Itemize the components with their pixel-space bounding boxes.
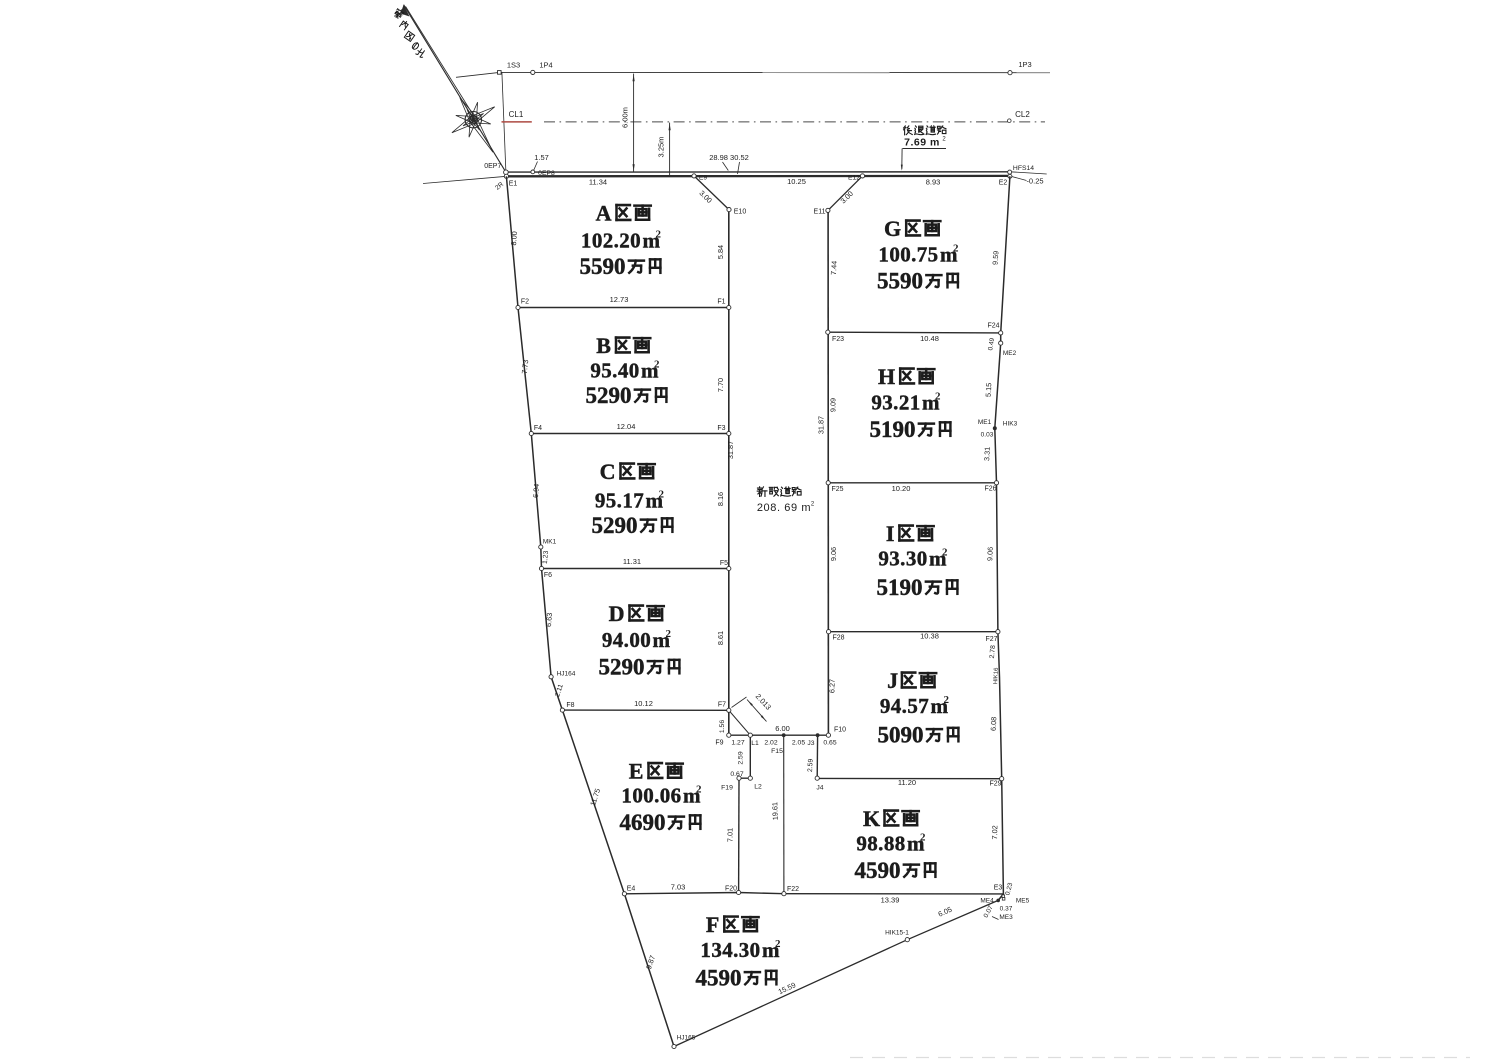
svg-text:2: 2 [665,628,671,640]
svg-text:11.20: 11.20 [898,778,916,787]
svg-text:ME1: ME1 [978,419,992,426]
svg-text:A: A [596,201,612,226]
svg-text:F9: F9 [715,739,723,746]
svg-text:2: 2 [654,359,660,371]
svg-text:1.23: 1.23 [542,550,550,564]
svg-text:11.31: 11.31 [623,557,641,566]
svg-text:2.59: 2.59 [737,751,744,764]
svg-text:95.17: 95.17 [595,488,644,512]
svg-text:C: C [600,459,616,484]
svg-text:94.00: 94.00 [602,628,651,652]
svg-text:2.02: 2.02 [764,740,777,747]
svg-text:E2: E2 [999,179,1008,186]
svg-text:11.34: 11.34 [589,178,607,187]
svg-text:3.31: 3.31 [982,447,992,462]
svg-text:-0.25: -0.25 [1026,176,1043,185]
svg-text:208. 69 m: 208. 69 m [757,502,811,514]
svg-text:9.06: 9.06 [829,547,838,561]
svg-text:12.73: 12.73 [610,295,629,304]
svg-text:F8: F8 [566,702,574,709]
svg-text:5.84: 5.84 [716,245,725,259]
svg-text:0.67: 0.67 [730,771,743,778]
svg-text:F25: F25 [831,486,843,493]
svg-text:10.20: 10.20 [892,484,911,493]
svg-text:8.16: 8.16 [716,492,725,506]
svg-text:ME2: ME2 [1003,350,1017,357]
svg-text:1S3: 1S3 [507,61,520,70]
svg-text:5190: 5190 [877,575,923,600]
svg-text:E1: E1 [509,181,518,188]
svg-text:6.00: 6.00 [775,724,790,733]
svg-text:HJ165: HJ165 [677,1035,696,1042]
svg-text:6.27: 6.27 [827,679,836,693]
svg-text:4690: 4690 [620,810,666,835]
svg-text:1.56: 1.56 [719,720,726,733]
svg-text:2: 2 [943,694,949,706]
svg-text:19.61: 19.61 [770,802,780,821]
svg-text:4590: 4590 [696,966,742,991]
svg-text:100.75: 100.75 [878,242,938,266]
svg-text:10.25: 10.25 [787,177,806,186]
svg-text:12.04: 12.04 [617,422,636,431]
svg-text:7.03: 7.03 [671,883,686,892]
svg-text:102.20: 102.20 [581,228,641,252]
svg-text:E12: E12 [848,175,860,182]
svg-text:7.70: 7.70 [716,378,725,392]
svg-text:9.06: 9.06 [985,547,994,562]
svg-text:D: D [609,601,625,626]
svg-text:95.40: 95.40 [590,358,639,382]
svg-text:5290: 5290 [586,383,632,408]
svg-text:J: J [887,668,898,693]
svg-text:E9: E9 [699,175,708,182]
svg-text:9.09: 9.09 [828,398,837,412]
svg-text:F5: F5 [720,560,728,567]
svg-text:F3: F3 [717,425,725,432]
svg-text:2: 2 [953,243,959,255]
svg-text:F20: F20 [725,886,737,893]
svg-text:2: 2 [920,832,926,844]
svg-text:ME4: ME4 [980,898,994,905]
svg-text:98.88: 98.88 [856,831,905,855]
svg-text:MK1: MK1 [543,539,557,546]
svg-text:2.78: 2.78 [989,645,997,659]
svg-text:2: 2 [942,547,948,559]
svg-text:E11: E11 [814,209,826,216]
svg-text:7.44: 7.44 [829,261,839,276]
svg-text:F6: F6 [544,572,552,579]
svg-text:F1: F1 [717,299,725,306]
svg-text:0.03: 0.03 [981,432,994,439]
svg-text:F7: F7 [718,702,726,709]
svg-text:94.57: 94.57 [880,694,929,718]
svg-text:CL2: CL2 [1015,110,1030,119]
svg-text:F: F [706,912,719,937]
svg-text:H: H [878,364,895,389]
svg-text:0EP8: 0EP8 [538,170,555,177]
svg-text:L2: L2 [754,784,762,791]
svg-text:HFS14: HFS14 [1013,165,1034,172]
svg-text:F4: F4 [534,425,542,432]
svg-text:1.57: 1.57 [534,153,549,162]
svg-text:31.87: 31.87 [817,416,826,434]
svg-text:F19: F19 [721,785,733,792]
svg-text:G: G [884,216,901,241]
svg-text:6.08: 6.08 [989,717,999,732]
svg-text:9.59: 9.59 [991,250,1001,265]
svg-text:F28: F28 [832,635,844,642]
svg-text:2: 2 [658,489,664,501]
svg-text:F26: F26 [984,486,996,493]
svg-text:0.37: 0.37 [1000,906,1013,913]
svg-text:J3: J3 [807,740,814,747]
svg-text:F10: F10 [834,727,846,734]
svg-text:F24: F24 [987,323,999,330]
svg-text:B: B [596,333,611,358]
svg-text:13.39: 13.39 [881,896,900,905]
svg-text:7.73: 7.73 [520,359,530,374]
svg-text:2: 2 [655,229,661,241]
svg-text:L1: L1 [751,740,759,747]
svg-text:E10: E10 [734,209,747,216]
svg-text:2: 2 [775,938,781,950]
svg-text:5290: 5290 [592,513,638,538]
svg-text:F27: F27 [985,636,997,643]
svg-text:7.69 m: 7.69 m [904,137,940,149]
svg-text:CL1: CL1 [509,110,524,119]
svg-text:28.98 30.52: 28.98 30.52 [709,153,749,162]
svg-text:4590: 4590 [855,858,901,883]
svg-text:8.93: 8.93 [926,178,941,187]
svg-text:ME3: ME3 [999,914,1013,921]
svg-text:5090: 5090 [878,723,924,748]
svg-text:6.63: 6.63 [544,612,554,627]
svg-text:5590: 5590 [877,269,923,294]
svg-text:5190: 5190 [870,417,916,442]
svg-text:E: E [629,759,644,784]
svg-text:31.87: 31.87 [726,441,735,459]
svg-text:7.01: 7.01 [725,828,734,842]
svg-text:8.00: 8.00 [509,231,519,246]
svg-text:2: 2 [696,784,702,796]
svg-text:1P3: 1P3 [1018,60,1031,69]
svg-text:7.02: 7.02 [990,825,999,840]
svg-text:HIK15-1: HIK15-1 [885,930,909,937]
svg-text:1.27: 1.27 [731,740,744,747]
svg-text:3.25m: 3.25m [657,137,666,158]
svg-text:E4: E4 [627,886,636,893]
svg-text:100.06: 100.06 [621,783,681,807]
svg-text:8.61: 8.61 [716,631,725,645]
svg-text:F22: F22 [787,886,799,893]
svg-text:F23: F23 [832,336,844,343]
svg-text:10.48: 10.48 [920,334,939,343]
svg-text:2.59: 2.59 [807,758,815,772]
svg-text:F29: F29 [989,781,1001,788]
svg-text:10.12: 10.12 [634,699,653,708]
svg-text:I: I [886,521,895,546]
svg-text:HIK16: HIK16 [993,667,1000,685]
svg-text:93.30: 93.30 [878,546,927,570]
svg-text:0EP7: 0EP7 [484,163,501,170]
svg-text:5.15: 5.15 [984,383,994,398]
svg-text:5590: 5590 [580,254,626,279]
svg-text:2.05: 2.05 [792,740,805,747]
svg-text:F2: F2 [521,299,529,306]
svg-text:10.38: 10.38 [920,632,939,641]
svg-text:93.21: 93.21 [871,390,920,414]
svg-text:HJ164: HJ164 [557,671,576,678]
svg-text:HIK3: HIK3 [1003,421,1018,428]
svg-text:J4: J4 [816,785,823,792]
svg-text:6.00m: 6.00m [621,107,630,128]
svg-text:2: 2 [935,391,941,403]
svg-text:0.65: 0.65 [823,740,836,747]
svg-text:E3: E3 [994,885,1003,892]
svg-text:K: K [863,806,880,831]
svg-text:134.30: 134.30 [700,938,760,962]
svg-text:6.94: 6.94 [531,483,541,498]
svg-text:1P4: 1P4 [539,61,552,70]
svg-text:ME5: ME5 [1016,898,1030,905]
svg-text:5290: 5290 [599,655,645,680]
svg-text:F15: F15 [771,748,783,755]
